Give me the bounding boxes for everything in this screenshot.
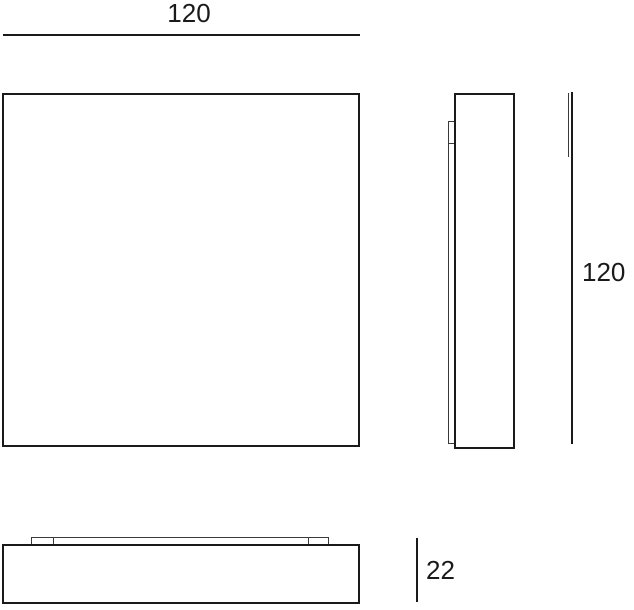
depth-dimension-label: 22 <box>426 557 455 583</box>
technical-drawing-canvas: 120 120 22 <box>0 0 634 610</box>
bottom-view-body <box>2 544 360 604</box>
backplate-tick-right <box>308 537 309 544</box>
height-dimension-label: 120 <box>582 259 625 285</box>
width-dimension-label: 120 <box>104 0 274 26</box>
front-view-panel <box>2 93 360 447</box>
depth-dimension-line <box>416 538 418 602</box>
side-view-body <box>454 93 515 449</box>
height-dimension-line-secondary <box>568 93 569 157</box>
backplate-tick-left <box>53 537 54 544</box>
width-dimension-line <box>3 34 360 36</box>
height-dimension-line <box>571 92 573 444</box>
